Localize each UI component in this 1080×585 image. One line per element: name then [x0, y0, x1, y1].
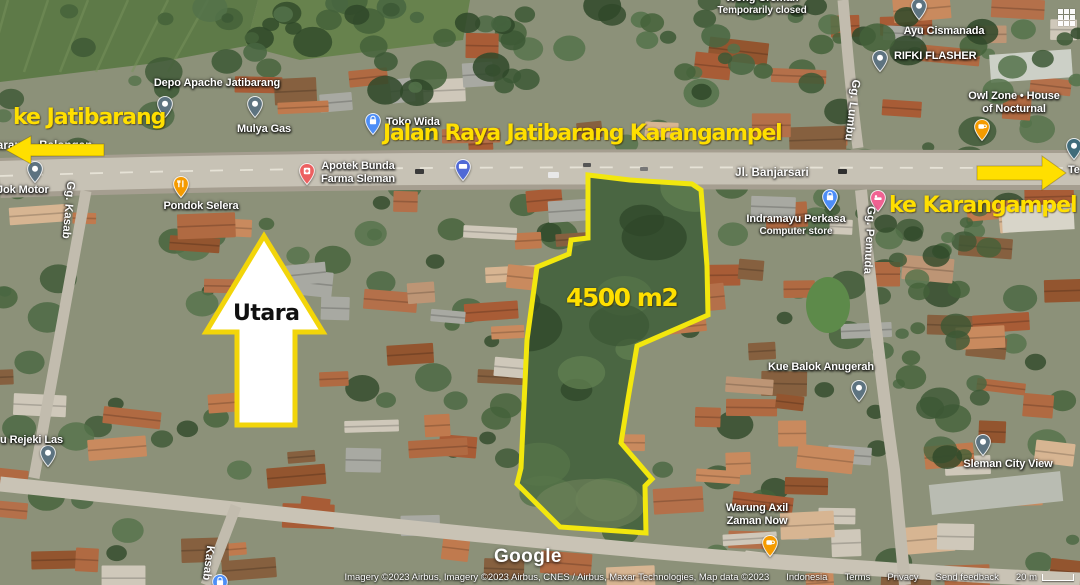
- place-label-pondok-selera[interactable]: Pondok Selera: [163, 200, 238, 213]
- dark-pin-icon[interactable]: [1066, 138, 1080, 160]
- place-label-jok-motor[interactable]: Jok Motor: [0, 184, 49, 197]
- generic-pin-icon[interactable]: [851, 380, 867, 402]
- coffee-pin-icon[interactable]: [974, 119, 990, 141]
- map-scale: 20 m: [1016, 572, 1074, 583]
- generic-pin-icon[interactable]: [40, 445, 56, 467]
- pharmacy-pin-icon[interactable]: [299, 163, 315, 185]
- food-pin-icon[interactable]: [173, 176, 189, 198]
- place-label-apotek-bunda-farma-sleman[interactable]: Apotek BundaFarma Sleman: [321, 160, 395, 185]
- shopping-pin-icon[interactable]: [822, 189, 838, 211]
- road-title-annotation: Jalan Raya Jatibarang Karangampel: [383, 121, 782, 146]
- generic-pin-icon[interactable]: [911, 0, 927, 20]
- place-label-kue-balok-anugerah[interactable]: Kue Balok Anugerah: [768, 361, 874, 374]
- imagery-attribution: Imagery ©2023 Airbus, Imagery ©2023 Airb…: [344, 572, 769, 583]
- place-label-sleman-city-view[interactable]: Sleman City View: [963, 458, 1052, 471]
- google-maps-satellite-view[interactable]: Wong CremanTemporarily closedDepo Apache…: [0, 0, 1080, 585]
- north-label: Utara: [233, 301, 299, 326]
- generic-pin-icon[interactable]: [27, 161, 43, 183]
- attribution-bar: Imagery ©2023 Airbus, Imagery ©2023 Airb…: [0, 571, 1074, 584]
- plot-area-annotation: 4500 m2: [566, 283, 677, 312]
- region-link[interactable]: Indonesia: [786, 572, 827, 583]
- ke-jatibarang-annotation: ke Jatibarang: [13, 105, 165, 130]
- place-label-depo-apache-jatibarang[interactable]: Depo Apache Jatibarang: [154, 77, 280, 90]
- place-label-owl-zone-house-of-nocturnal[interactable]: Owl Zone • Houseof Nocturnal: [968, 90, 1059, 115]
- place-label-ayu-cismanada[interactable]: Ayu Cismanada: [904, 25, 985, 38]
- shopping-pin-icon[interactable]: [365, 113, 381, 135]
- coffee-pin-icon[interactable]: [762, 535, 778, 557]
- place-label-rejeki-las[interactable]: u Rejeki Las: [0, 434, 63, 447]
- privacy-link[interactable]: Privacy: [887, 572, 918, 583]
- rooftop-grid-structure: [1058, 9, 1075, 26]
- generic-pin-icon[interactable]: [975, 434, 991, 456]
- place-label-indramayu-perkasa[interactable]: Indramayu PerkasaComputer store: [746, 213, 845, 238]
- ke-karangampel-annotation: ke Karangampel: [889, 193, 1077, 218]
- scale-bar-icon: [1042, 574, 1074, 581]
- place-label-wong-creman[interactable]: Wong CremanTemporarily closed: [717, 0, 806, 17]
- scale-label: 20 m: [1016, 572, 1037, 583]
- place-label-rifki-flasher[interactable]: RIFKI FLASHER: [894, 50, 976, 63]
- send-feedback-link[interactable]: Send feedback: [935, 572, 998, 583]
- generic-pin-icon[interactable]: [872, 50, 888, 72]
- generic-pin-icon[interactable]: [247, 96, 263, 118]
- place-label-warung-axil-zaman-now[interactable]: Warung AxilZaman Now: [726, 502, 788, 527]
- place-label-mulya-gas[interactable]: Mulya Gas: [237, 123, 291, 136]
- badge-pin-icon[interactable]: [455, 159, 471, 181]
- road-label-jatibarang-balongan: Jatibarang - Balongan: [0, 140, 92, 152]
- terms-link[interactable]: Terms: [844, 572, 870, 583]
- google-logo: Google: [494, 546, 562, 568]
- place-label-te-partial[interactable]: Te: [1068, 164, 1080, 177]
- road-label-jl-banjarsari: Jl. Banjarsari: [735, 167, 809, 179]
